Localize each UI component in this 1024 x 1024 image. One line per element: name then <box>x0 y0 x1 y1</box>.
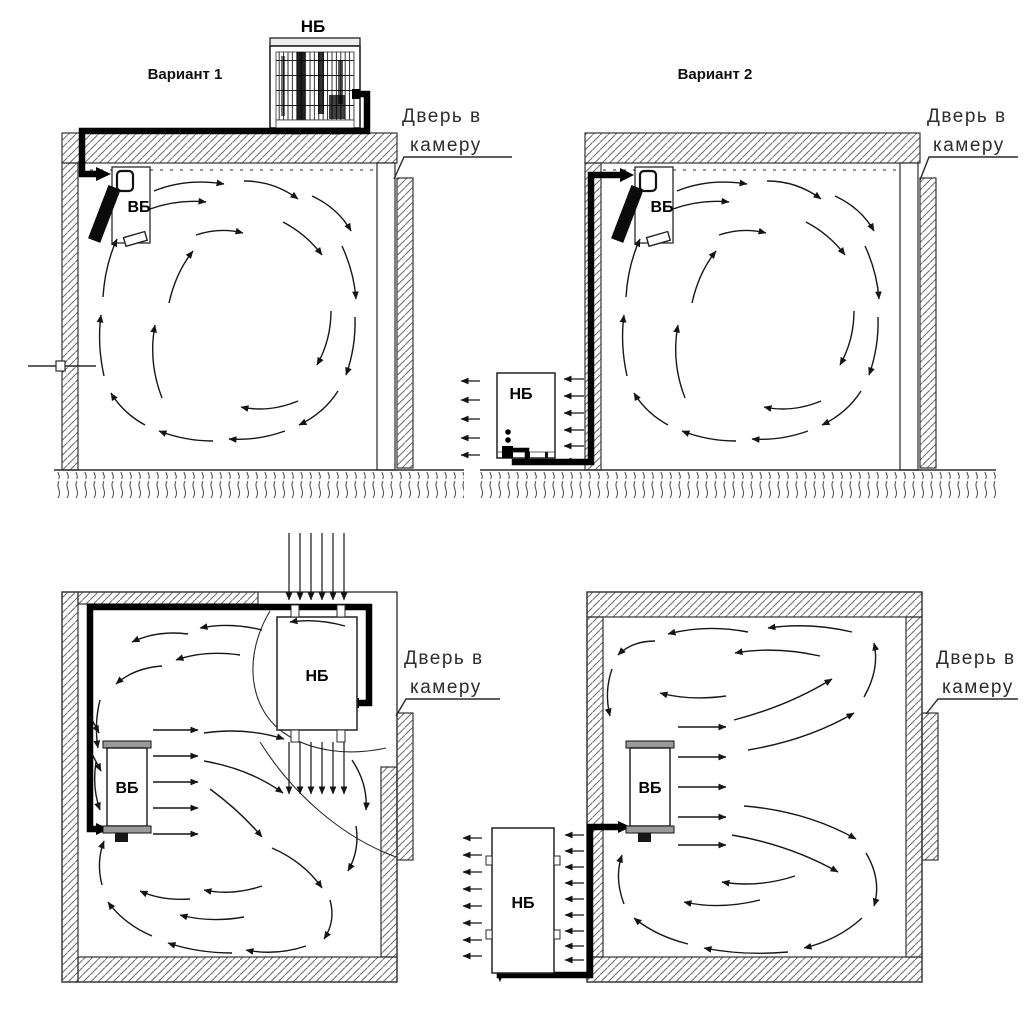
door-label-line2: камеру <box>933 135 1005 156</box>
door-callout: Дверь в камеру <box>396 648 500 716</box>
chamber-right-wall <box>906 617 922 957</box>
door-label-line2: камеру <box>410 135 482 156</box>
variant1-title: Вариант 1 <box>148 66 223 83</box>
variant2-elevation-diagram: Вариант 2 НБ <box>461 66 1018 498</box>
door-jamb <box>900 163 918 470</box>
chamber-bottom-wall <box>587 957 922 982</box>
indoor-unit-label: ВБ <box>638 780 661 797</box>
cold-room-structure <box>480 133 996 498</box>
variant2-title: Вариант 2 <box>678 66 753 83</box>
door-leader-line <box>926 699 1018 714</box>
door-label-line1: Дверь в <box>404 648 484 669</box>
pipe-arrowhead <box>96 167 111 181</box>
door-callout: Дверь в камеру <box>926 648 1018 714</box>
door-label-line1: Дверь в <box>402 106 482 127</box>
chamber-roof <box>585 133 920 163</box>
chamber-top-wall <box>78 592 258 604</box>
wall-sensor <box>28 361 96 371</box>
ground-hatch <box>54 472 464 498</box>
chamber-roof <box>62 133 397 163</box>
chamber-door <box>922 713 938 860</box>
indoor-unit-label: ВБ <box>127 199 150 216</box>
variant2-plan-diagram: НБ ВБ <box>463 592 1018 982</box>
door-leader-line <box>920 157 1018 180</box>
pipe-arrowhead <box>620 168 634 182</box>
chamber-door <box>397 178 413 468</box>
outdoor-unit-label: НБ <box>509 386 532 403</box>
outdoor-unit-label: НБ <box>301 17 326 36</box>
chamber-door <box>920 178 936 468</box>
ground-hatch <box>480 472 996 498</box>
chamber-top-wall <box>587 592 922 617</box>
door-label-line1: Дверь в <box>927 106 1007 127</box>
variant1-plan-diagram: НБ ВБ <box>62 533 500 982</box>
chamber-left-wall <box>62 163 78 470</box>
outdoor-unit-label: НБ <box>305 668 328 685</box>
door-callout: Дверь в камеру <box>920 106 1018 180</box>
installation-variants-drawing: Вариант 1 НБ ВБ <box>0 0 1024 1024</box>
door-label-line2: камеру <box>410 677 482 698</box>
chamber-door <box>397 713 413 860</box>
outdoor-unit <box>270 38 360 134</box>
indoor-unit-label: ВБ <box>115 780 138 797</box>
door-label-line2: камеру <box>942 677 1014 698</box>
chamber-left-wall <box>62 592 78 982</box>
door-callout: Дверь в камеру <box>394 106 512 179</box>
door-label-line1: Дверь в <box>936 648 1016 669</box>
outdoor-unit-label: НБ <box>511 895 534 912</box>
door-jamb <box>377 163 395 470</box>
chamber-right-wall <box>381 767 397 957</box>
indoor-unit-label: ВБ <box>650 199 673 216</box>
variant1-elevation-diagram: Вариант 1 НБ ВБ <box>28 17 512 498</box>
chamber-bottom-wall <box>78 957 397 982</box>
door-leader-line <box>394 157 512 179</box>
